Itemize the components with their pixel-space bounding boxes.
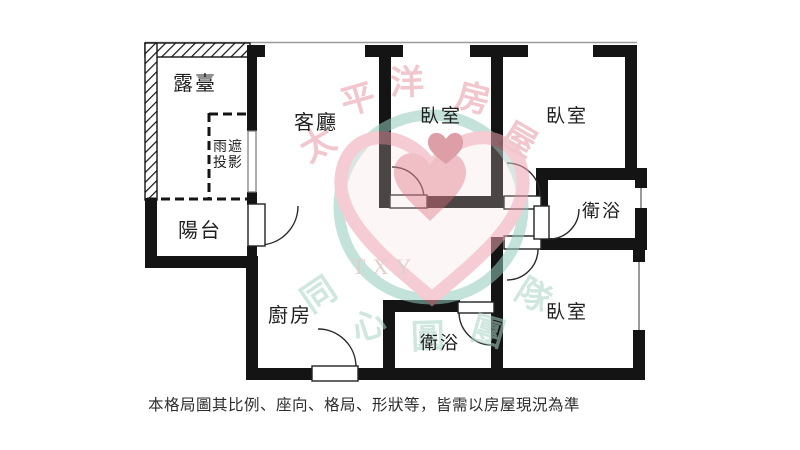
- kitchen-door-panel: [312, 366, 358, 381]
- label-balcony: 陽台: [178, 219, 222, 242]
- label-kitchen: 廚房: [268, 303, 312, 327]
- kitchen-door-arc: [318, 329, 356, 367]
- bath-right-door-arc: [549, 209, 579, 239]
- label-bedroom-top-mid: 臥室: [420, 105, 462, 127]
- bath-right-rightwall-upper: [635, 168, 647, 188]
- entrance-door-panel: [248, 204, 265, 246]
- floorplan-page: TXY 太 平 洋 房 屋 同 心 圓 團 隊 露臺 雨遮 投影 陽台 客廳 臥…: [0, 0, 800, 450]
- terrace-right-wall-upper: [247, 45, 257, 131]
- bedroom3-rightwall-lower: [633, 330, 645, 380]
- terrace-top-wall-hatched: [145, 43, 250, 57]
- bath-right-door-panel: [534, 206, 549, 239]
- bath-right-bottom-wall: [540, 238, 647, 250]
- label-living: 客廳: [294, 111, 338, 134]
- label-bedroom-top-right: 臥室: [546, 105, 588, 127]
- svg-text:洋: 洋: [389, 63, 424, 102]
- disclaimer-text: 本格局圖其比例、座向、格局、形狀等，皆需以房屋現況為準: [148, 396, 580, 414]
- label-terrace: 露臺: [173, 72, 217, 95]
- bedroom3-rightwall-upper: [633, 250, 645, 262]
- label-rain-shade-2: 投影: [213, 155, 243, 171]
- label-bath-right: 衛浴: [582, 201, 622, 221]
- txy-logo-text: TXY: [352, 254, 418, 279]
- living-left-window: [248, 131, 256, 192]
- label-rain-shade-1: 雨遮: [213, 139, 243, 155]
- label-bedroom-bottom-right: 臥室: [546, 301, 588, 323]
- bottom-wall-left: [246, 368, 314, 380]
- floorplan-canvas: TXY 太 平 洋 房 屋 同 心 圓 團 隊 露臺 雨遮 投影 陽台 客廳 臥…: [0, 0, 800, 450]
- label-bath-bottom: 衛浴: [420, 333, 460, 353]
- svg-text:平: 平: [337, 78, 380, 123]
- balcony-bottom-wall: [145, 256, 252, 268]
- bedroom2-right-wall: [625, 45, 637, 180]
- terrace-left-wall-hatched: [145, 43, 157, 200]
- bath-right-top-wall: [536, 168, 647, 180]
- kitchen-left-wall: [246, 256, 258, 380]
